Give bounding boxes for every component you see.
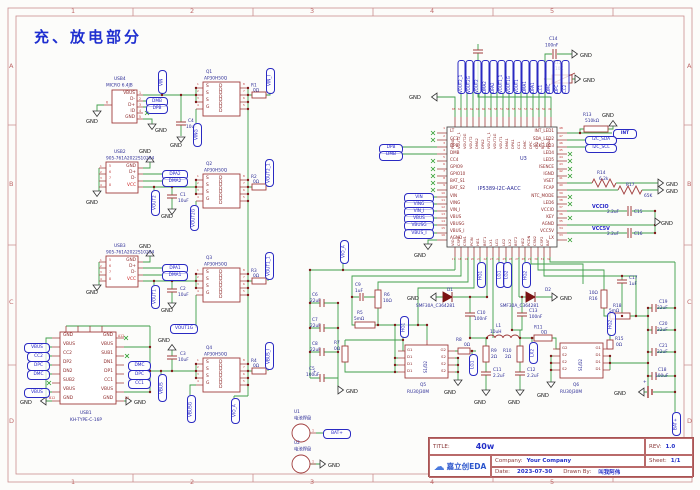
r9-label: R92Ω [491,348,498,360]
c13-cap [517,313,527,316]
net-label-cc1[interactable]: CC1 [128,379,151,389]
battery-glyph [648,386,652,398]
usb2-pin-numbers: 5678 [109,165,111,190]
usb3-pin-numbers: 5678 [109,259,111,284]
c14-cap [553,49,556,59]
c1-label: C110uF [178,192,189,204]
rev-value: 1.0 [665,444,675,450]
schematic-canvas[interactable]: GND GND GND GND GND GND GND GND GND GND … [0,0,700,490]
gnd-label: GND [666,182,678,188]
u3-right-pin-numbers: 48474645444342414039383736353433 [559,127,568,241]
q4-d-pins: D DD DD DD D [219,361,239,389]
net-label-dmc[interactable]: DMC [27,370,50,380]
frame-col: 1 [71,478,75,486]
vcc5v-net-label: VCC5V [592,226,610,232]
r16-label: 10ΩR16 [589,290,598,302]
net-label-bat-plus[interactable]: BAT+ [672,412,681,436]
net-label-dmb[interactable]: DMB [379,151,403,161]
q3-label: Q3AP30H50Q [204,255,228,268]
r8-body [458,348,470,354]
c8-label: C822uF [310,341,321,353]
r8-label: R80Ω [456,337,471,348]
title-label: TITLE: [433,444,450,450]
net-label-vin-i[interactable]: VIN_I [266,68,275,94]
title-block: TITLE: 40w REV: 1.0 ☁ 嘉立创EDA Company: Yo… [428,437,694,477]
net-label-lg1[interactable]: LG1 [469,354,478,376]
gnd-label: GND [20,400,32,406]
c5-plus: + [313,369,317,375]
easyeda-cloud-icon: ☁ [434,461,445,472]
r9-body [483,346,489,362]
title-block-company-cell: Company: Your Company [491,455,645,467]
usb3-pin-names: GNDD+D-VCC [116,259,136,284]
company-value: Your Company [527,458,572,464]
q4-left-numbers: 1234 [197,359,199,387]
net-label-vout2g[interactable]: VOUT2G [190,205,199,231]
frame-col: 5 [550,7,554,15]
r15-body [607,340,613,349]
net-label-hg1[interactable]: HG1 [400,316,409,338]
c6-label: C622uF [310,292,321,304]
c2-label: C210uF [178,286,189,298]
gnd-label: GND [409,95,421,101]
gnd-label: GND [580,53,592,59]
q2-left-numbers: 1234 [197,175,199,203]
schematic-sheet: GND GND GND GND GND GND GND GND GND GND … [0,0,700,490]
net-label-vbus-i[interactable]: VBUS_I [404,229,434,239]
q5-mid-label: S1/D2 [423,351,428,373]
gnd-label: GND [407,296,419,302]
title-block-rev-cell: REV: 1.0 [645,438,693,455]
title-value: 40w [476,442,495,451]
c9-cap [360,293,363,301]
frame-col: 4 [430,7,434,15]
gnd-label: GND [474,400,486,406]
usb4-pin-numbers: 12345 [139,92,141,122]
vccio-net-label: VCCIO [592,204,609,210]
gnd-label: GND [560,296,572,302]
c3-label: C310uF [178,351,189,363]
q5-label: Q5RU30J30M [407,382,429,395]
net-label-vout2[interactable]: VOUT2 [151,190,160,216]
q5-right-pins: G2S2S2S2 [426,348,446,376]
gnd-label: GND [537,393,549,399]
usb2-left-pin-numbers: 1234 [100,165,102,190]
r6-label: R610Ω [383,292,392,304]
q2-s-pins: SSSG [206,177,209,205]
r4-label: R40Ω [251,358,260,369]
gnd-label: GND [161,308,173,314]
r7-label: R70Ω [334,340,341,352]
frame-row: A [687,62,691,70]
r14-label: R146.2k [597,170,609,182]
title-block-sheet-cell: Sheet: 1/1 [645,455,693,467]
r11-label: R110Ω [534,325,548,336]
u3-bottom-pin-names: VIOCSP1CSN1PCINHG1BST1LX1LG1LG2LX2BST2HG… [452,224,554,246]
l1-label: L110uH [490,323,501,335]
r16-body [601,290,607,308]
sheet-label: Sheet: [649,458,667,464]
usb4-label: USB4MICRO 6.4JB [106,76,133,89]
frame-col: 3 [310,7,314,15]
u2-pad [292,455,310,473]
c3-cap [167,356,177,359]
gnd-label: GND [170,143,182,149]
c15-label: 2.2uFC15 [607,209,643,215]
component-outlines[interactable] [60,73,642,473]
frame-col: 3 [310,478,314,486]
q3-d-pins: D DD DD DD D [219,271,239,299]
net-label-vio-a[interactable]: VIO_A [231,398,240,424]
frame-row: B [687,180,691,188]
c5-cap [320,374,324,382]
capacitor-unlabeled [473,50,483,53]
q4-s-pins: SSSG [206,361,209,389]
c12-cap [515,372,525,375]
net-label-vout2-1[interactable]: VOUT2_1 [265,159,274,187]
u1-label: U1电池焊盘 [294,409,312,422]
net-label-hg1[interactable]: HG1 [477,262,486,288]
u3-top-pin-names: PGNDVOUT2_1VOUT2GVOUT2DMA2DPA2VOUT1_1VOU… [452,129,554,149]
c13-label: C13100nF [529,308,543,320]
usb1-label: USB1KH-TYPE-C-16P [70,410,102,423]
net-label-vio-a[interactable]: VIO_A [340,240,349,264]
c12-label: C122.2uF [527,367,540,379]
net-label-dma1[interactable]: DMA1 [162,271,188,281]
c21-cap [652,348,656,356]
net-label-vout1g[interactable]: VOUT1G [170,324,198,334]
r2-label: R20Ω [251,174,260,185]
usb3-left-pin-numbers: 1234 [100,259,102,284]
c14-label: C14100nF [545,36,559,49]
u3-top-net-labels[interactable]: VOUT2_1VOUT2GVOUT2DMA2DPA2VOUT1_1VOUT1GV… [458,60,570,94]
net-label-hg2[interactable]: HG2 [522,262,531,288]
gnd-label: GND [328,463,340,469]
net-label-vbus-i[interactable]: VBUS_I [265,342,274,370]
r11-body [534,335,552,341]
q6-label: Q6RU30J30M [560,382,582,395]
r10-body [517,346,523,362]
d2-diode [526,292,535,302]
net-label-dma2[interactable]: DMA2 [162,177,188,187]
r3-label: R30Ω [251,268,260,279]
frame-col: 5 [550,478,554,486]
gnd-label: GND [583,78,595,84]
gnd-label: GND [155,128,167,134]
net-label-vout1-1[interactable]: VOUT1_1 [265,252,274,280]
rev-label: REV: [649,444,661,450]
r7-body [342,346,348,362]
gnd-label: GND [666,189,678,195]
net-label-lx2[interactable]: LX2 [529,342,538,364]
drawn-by-label: Drawn By: [563,469,591,475]
gnd-label: GND [134,400,146,406]
q3-left-numbers: 1234 [197,269,199,297]
r5-label: R55mΩ [354,310,365,322]
drawn-by-value: 叫我阿伟 [598,468,620,476]
frame-row: D [687,417,692,425]
q5-left-pins: G1D1D1D1 [407,348,413,376]
c9-label: C91uF [355,282,363,294]
q6-right-pins: G1D1D1D1 [581,346,601,374]
usb2-pin-names: GNDD+D-VCC [116,165,136,190]
q4-right-numbers: 8765 [243,359,245,387]
c11-cap [481,372,491,375]
frame-col: 4 [430,478,434,486]
gnd-label: GND [86,290,98,296]
c18-plus: + [643,379,647,385]
u2-pin-number: 1 [312,460,314,464]
c2-cap [167,289,177,292]
usb1-left-pin-names: GNDVBUSCC2DP2DN2SUB2VBUSGND [63,334,87,406]
r10-label: R102Ω [503,348,512,360]
q3-s-pins: SSSG [206,271,209,299]
c19-label: C1922uF [657,299,668,311]
q6-mid-label: S1/D2 [578,349,583,371]
q1-right-numbers: 8765 [243,83,245,111]
usb4-pin-names: VBUSD-D+IDGND [114,92,135,122]
gnd-label: GND [139,244,151,250]
date-label: Date: [495,469,510,475]
q6-left-pins: G2S2S2S2 [562,346,568,374]
net-label-vbus[interactable]: VBUS [24,388,50,398]
sheet-title-annotation[interactable]: 充、放电部分 [34,26,142,47]
frame-row: B [9,180,13,188]
d1-diode [443,292,452,302]
gnd-label: GND [602,113,614,119]
c1-cap [167,195,177,198]
gnd-label: GND [139,149,151,155]
u1-pad [292,424,310,442]
net-label-hg2[interactable]: HG2 [607,312,616,336]
net-label-i2c-scl[interactable]: I2C_SCL [585,144,617,153]
net-label-bat-plus[interactable]: BAT+ [323,429,351,439]
c16-label: 2.2uFC16 [607,231,643,237]
net-label-lg2[interactable]: LG2 [503,262,512,288]
title-block-logo-cell: ☁ 嘉立创EDA [429,455,491,478]
gnd-label: GND [86,119,98,125]
c19-cap [652,304,656,312]
frame-col: 2 [190,478,194,486]
net-label-vbus[interactable]: VBUS [158,374,167,402]
r13-label: R13510kΩ [583,112,600,124]
c21-label: C2122uF [657,343,668,355]
gnd-label: GND [661,221,673,227]
frame-row: A [9,62,13,70]
company-label: Company: [495,458,523,464]
r15-label: R150Ω [615,336,624,348]
frame-row: C [9,298,14,306]
u3-top-pin-numbers: 6564636261605958575655545352515049 [452,109,554,112]
date-value: 2023-07-30 [517,469,552,475]
c20-cap [652,326,656,334]
q1-d-pins: D DD DD DD D [219,85,239,113]
c10-cap [465,313,475,316]
l1-coil [487,335,519,338]
net-label-vin[interactable]: VIN [158,70,167,94]
net-label-vbusg[interactable]: VBUSG [187,395,196,423]
frame-col: 1 [71,7,75,15]
easyeda-logo-text: 嘉立创EDA [447,461,487,472]
frame-row: D [9,417,14,425]
frame-col: 2 [190,7,194,15]
c4-cap [176,122,186,125]
r6-body [375,290,381,308]
r5-body [355,322,375,328]
q1-s-pins: SSSG [206,85,209,113]
gnd-label: GND [414,253,426,259]
q2-label: Q2AP30H50Q [204,161,228,174]
frame-row: C [687,298,692,306]
sheet-value: 1/1 [671,458,681,464]
title-block-title-cell: TITLE: 40w [429,438,645,455]
q4-label: Q4AP30H50Q [204,345,228,358]
q1-left-numbers: 1234 [197,83,199,111]
c7-label: C722uF [310,317,321,329]
q3-right-numbers: 8765 [243,269,245,297]
r1-label: R10Ω [251,83,260,94]
gnd-label: GND [86,200,98,206]
q1-label: Q1AP30H50Q [204,69,228,82]
c15-cap [628,206,631,216]
gnd-label: GND [346,389,358,395]
usb4-pin6-number: 6 [106,101,108,105]
r13-body [584,126,608,132]
net-label-vout1[interactable]: VOUT1 [151,285,160,309]
gnd-label: GND [158,338,170,344]
c20-label: C2022uF [657,321,668,333]
c16-cap [628,228,631,238]
q2-right-numbers: 8765 [243,175,245,203]
gnd-label: GND [444,390,456,396]
net-label-ving[interactable]: VING [193,123,202,147]
gnd-label: GND [161,214,173,220]
c17-cap [617,280,627,283]
c18-label: C18100uF [655,367,669,379]
u1-pin-number: 1 [312,429,314,433]
c10-label: C10100nF [474,310,488,322]
net-label-dpb[interactable]: DPB [146,104,168,114]
q2-d-pins: D DD DD DD D [219,177,239,205]
c11-label: C112.2uF [493,367,506,379]
title-block-date-cell: Date: 2023-07-30 Drawn By: 叫我阿伟 [491,467,693,479]
u3-left-pin-numbers: 12345678910111213141516 [437,127,445,241]
gnd-label: GND [508,400,520,406]
u3-bottom-pin-numbers: 17181920212223242526272829303132 [452,259,554,262]
gnd-label: GND [614,391,626,397]
usb1-right-pin-names: GNDVBUSSUB1DN1DP1CC1VBUSGND [86,334,113,406]
